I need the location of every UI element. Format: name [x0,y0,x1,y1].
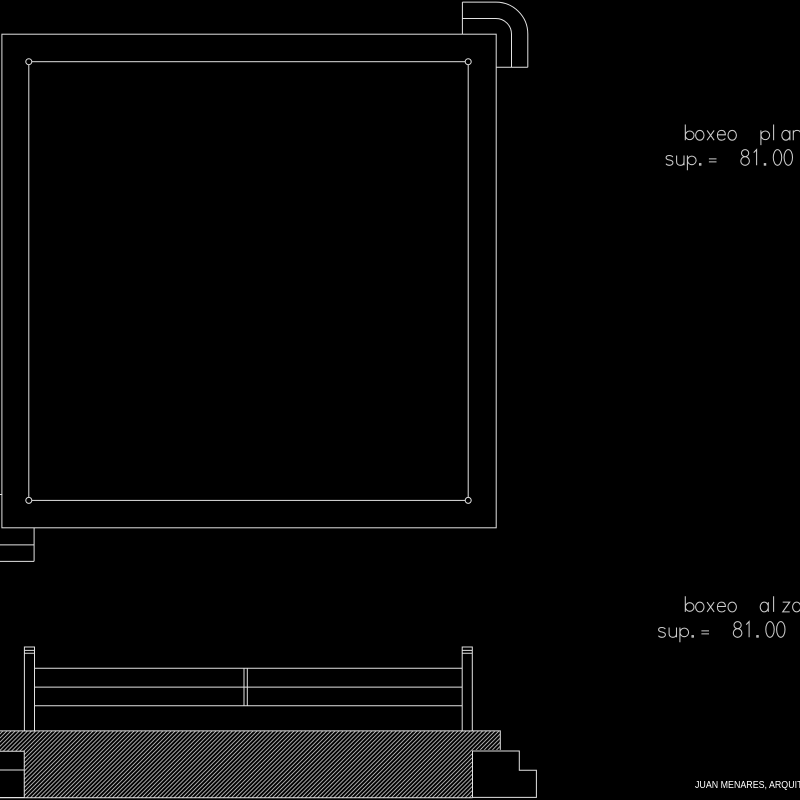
svg-text:JUAN MENARES, ARQUITECTO: JUAN MENARES, ARQUITECTO [695,779,800,791]
